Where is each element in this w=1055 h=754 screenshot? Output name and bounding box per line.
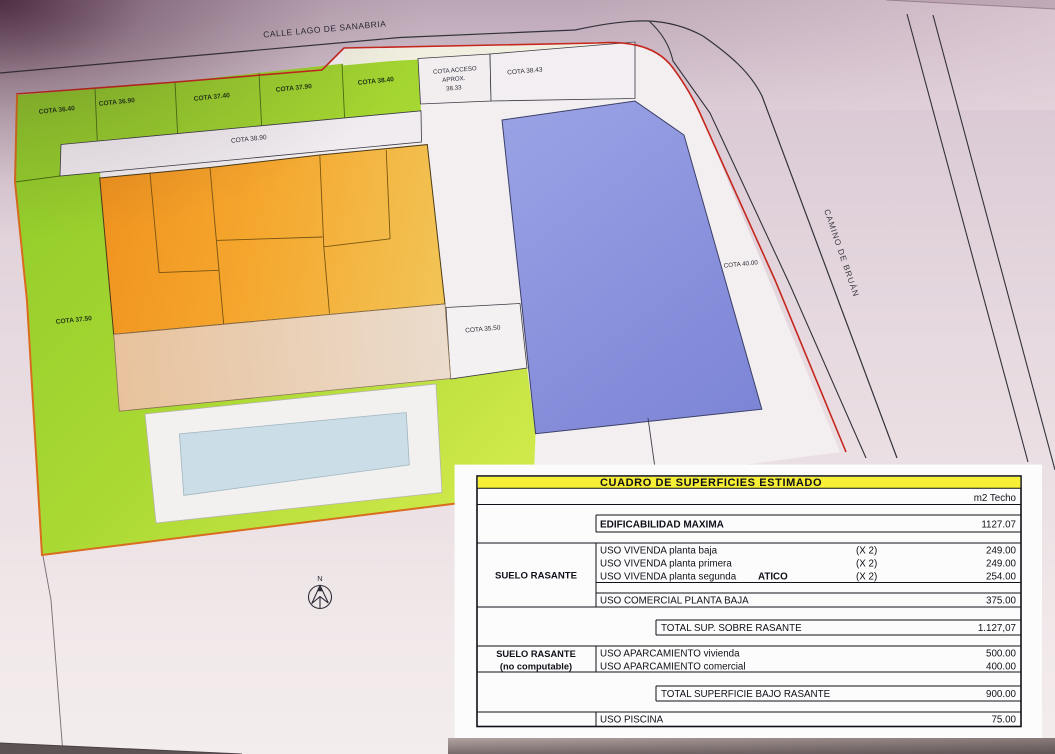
svg-text:USO COMERCIAL PLANTA BAJA: USO COMERCIAL PLANTA BAJA: [600, 596, 749, 607]
svg-text:EDIFICABILIDAD MAXIMA: EDIFICABILIDAD MAXIMA: [600, 520, 724, 531]
svg-text:500.00: 500.00: [986, 649, 1017, 660]
svg-text:SUELO RASANTE: SUELO RASANTE: [495, 571, 578, 582]
svg-text:900.00: 900.00: [986, 689, 1017, 700]
svg-text:USO PISCINA: USO PISCINA: [600, 715, 664, 726]
svg-text:(X 2): (X 2): [856, 559, 877, 570]
svg-text:1127.07: 1127.07: [981, 520, 1016, 531]
svg-text:SUELO RASANTE: SUELO RASANTE: [496, 649, 576, 659]
svg-text:USO VIVENDA planta baja: USO VIVENDA planta baja: [600, 546, 718, 557]
svg-text:TOTAL SUP. SOBRE RASANTE: TOTAL SUP. SOBRE RASANTE: [661, 623, 802, 634]
svg-text:USO APARCAMIENTO vivienda: USO APARCAMIENTO vivienda: [600, 649, 740, 660]
svg-text:(X 2): (X 2): [856, 546, 877, 557]
svg-text:75.00: 75.00: [991, 715, 1016, 726]
svg-text:1.127,07: 1.127,07: [978, 623, 1016, 634]
svg-text:(X 2): (X 2): [856, 572, 877, 583]
svg-text:USO VIVENDA planta segunda: USO VIVENDA planta segunda: [600, 572, 737, 583]
svg-text:249.00: 249.00: [986, 559, 1017, 570]
svg-text:400.00: 400.00: [986, 662, 1017, 673]
svg-text:USO APARCAMIENTO comercial: USO APARCAMIENTO comercial: [600, 662, 746, 673]
svg-text:TOTAL SUPERFICIE BAJO RASANTE: TOTAL SUPERFICIE BAJO RASANTE: [661, 689, 831, 700]
svg-text:m2 Techo: m2 Techo: [974, 493, 1017, 504]
svg-text:254.00: 254.00: [986, 572, 1017, 583]
svg-text:N: N: [317, 574, 322, 583]
svg-text:(no computable): (no computable): [500, 662, 572, 672]
svg-text:USO VIVENDA planta primera: USO VIVENDA planta primera: [600, 559, 732, 570]
svg-text:249.00: 249.00: [986, 546, 1017, 557]
svg-text:ATICO: ATICO: [758, 572, 788, 583]
svg-text:38.33: 38.33: [446, 84, 463, 92]
svg-text:375.00: 375.00: [986, 596, 1017, 607]
svg-text:CUADRO DE SUPERFICIES ESTIMADO: CUADRO DE SUPERFICIES ESTIMADO: [600, 477, 822, 489]
